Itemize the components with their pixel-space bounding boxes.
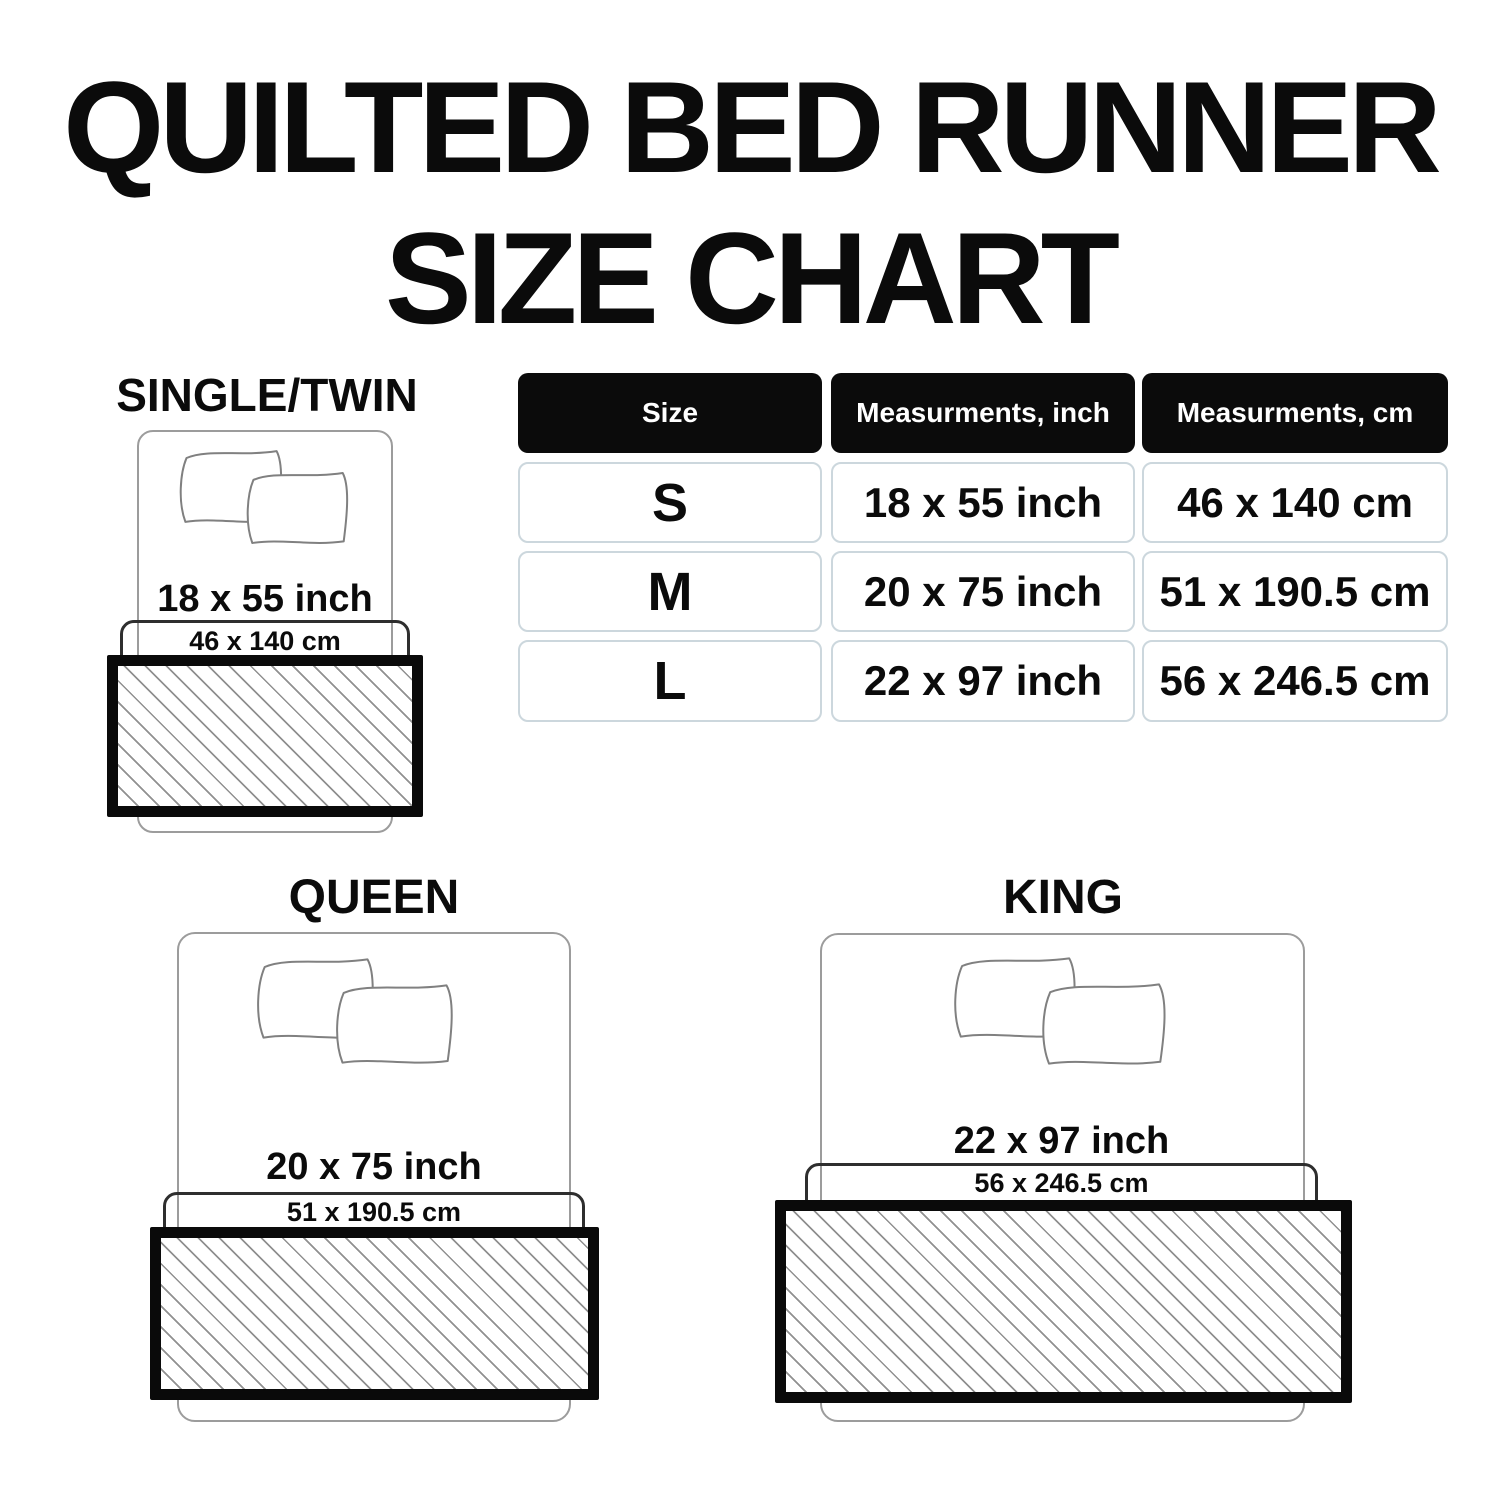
cell-size-m: M <box>518 551 822 632</box>
cell-cm-s: 46 x 140 cm <box>1142 462 1448 543</box>
cell-inch-l: 22 x 97 inch <box>831 640 1135 722</box>
page-title-line2: SIZE CHART <box>0 203 1500 354</box>
cell-cm-l: 56 x 246.5 cm <box>1142 640 1448 722</box>
diagram-title-king: KING <box>883 870 1243 925</box>
table-header-size: Size <box>518 373 822 453</box>
pillow-front-icon <box>337 985 452 1062</box>
dimension-cm-queen: 51 x 190.5 cm <box>163 1197 585 1228</box>
dimension-cm-single: 46 x 140 cm <box>120 626 410 657</box>
table-header-inch: Measurments, inch <box>831 373 1135 453</box>
quilted-runner-single <box>107 655 423 817</box>
pillow-front-icon <box>1043 984 1164 1063</box>
cell-inch-s: 18 x 55 inch <box>831 462 1135 543</box>
cell-size-s: S <box>518 462 822 543</box>
table-header-cm: Measurments, cm <box>1142 373 1448 453</box>
page-title-line1: QUILTED BED RUNNER <box>0 52 1500 203</box>
diagram-title-queen: QUEEN <box>194 870 554 925</box>
cell-cm-m: 51 x 190.5 cm <box>1142 551 1448 632</box>
dimension-inch-single: 18 x 55 inch <box>120 578 410 621</box>
cell-inch-m: 20 x 75 inch <box>831 551 1135 632</box>
dimension-inch-king: 22 x 97 inch <box>805 1120 1318 1163</box>
dimension-inch-queen: 20 x 75 inch <box>163 1146 585 1189</box>
cell-size-l: L <box>518 640 822 722</box>
dimension-cm-king: 56 x 246.5 cm <box>805 1168 1318 1199</box>
quilted-runner-king <box>775 1200 1352 1403</box>
pillow-front-icon <box>248 473 347 543</box>
page-title: QUILTED BED RUNNER SIZE CHART <box>0 52 1500 354</box>
quilted-runner-queen <box>150 1227 599 1400</box>
size-chart-infographic: QUILTED BED RUNNER SIZE CHART SINGLE/TWI… <box>0 0 1500 1500</box>
diagram-title-single-twin: SINGLE/TWIN <box>85 368 449 422</box>
